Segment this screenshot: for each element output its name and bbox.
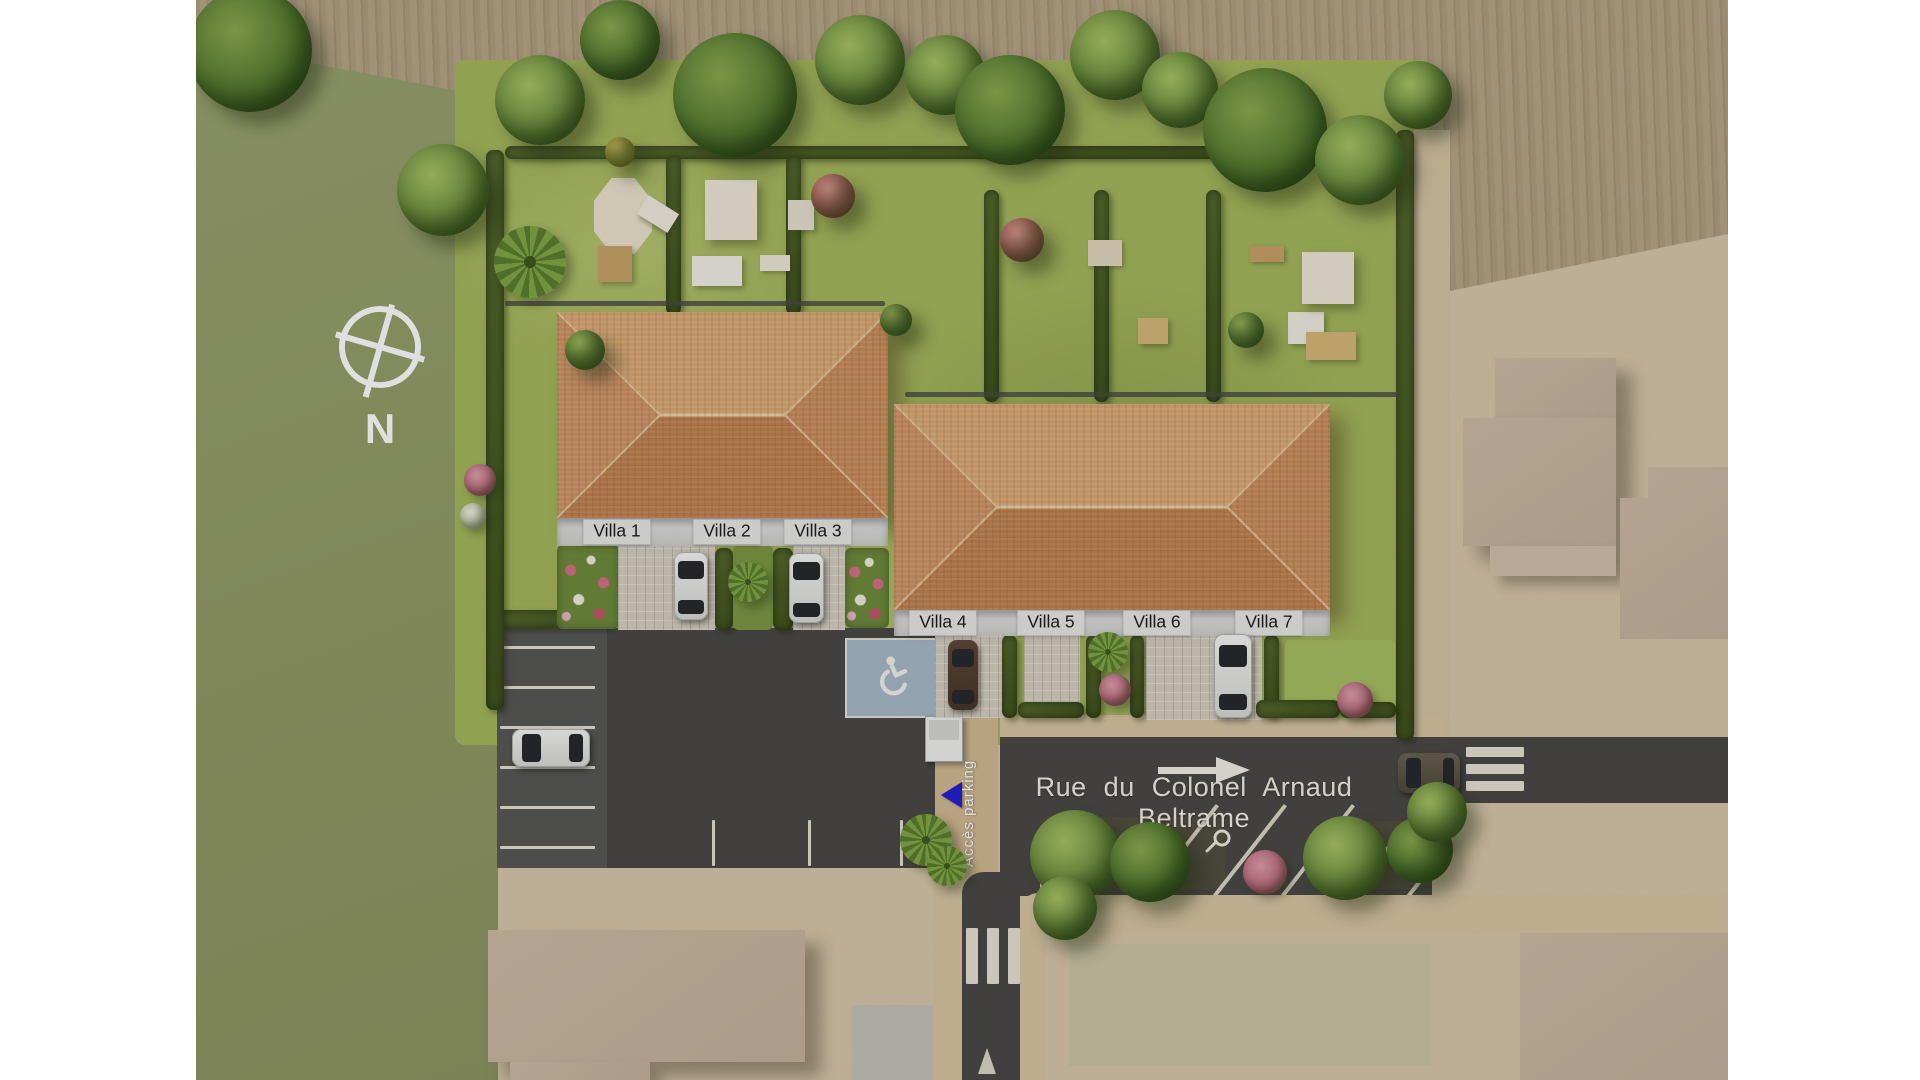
crosswalk-bar — [1008, 928, 1020, 984]
east-boundary-hedge — [1396, 130, 1414, 740]
driveway-hedge — [1130, 635, 1144, 718]
compass-icon: N — [330, 295, 430, 447]
parking-stall-line — [500, 646, 595, 649]
site-plan-image: Rue du Colonel Arnaud Beltrame Accès par… — [0, 0, 1920, 1080]
garden-table — [1138, 318, 1168, 344]
building-2 — [894, 404, 1330, 610]
garden-table — [692, 256, 742, 286]
flowering-shrub — [605, 137, 635, 167]
villa-3-label[interactable]: Villa 3 — [784, 520, 851, 545]
garden-table — [1306, 332, 1356, 360]
garden-table — [788, 200, 814, 230]
building-1-facade: Villa 1 Villa 2 Villa 3 — [557, 518, 888, 546]
car-villa-2 — [674, 552, 708, 620]
crosswalk-bar — [1466, 764, 1524, 774]
front-flowerbed — [557, 545, 619, 629]
villa-1-label[interactable]: Villa 1 — [583, 520, 650, 545]
driveway-hedge — [1002, 635, 1017, 718]
neighbor-building-ne-main — [1463, 418, 1616, 546]
yield-marking — [978, 1048, 996, 1074]
tree — [495, 55, 585, 145]
garden-divider-hedge — [984, 190, 999, 402]
flower-shrub — [1099, 674, 1131, 706]
garden-pergola — [1302, 252, 1354, 304]
neighbor-building-sw — [488, 930, 805, 1062]
parked-car — [512, 729, 590, 767]
left-margin — [0, 0, 196, 1080]
villa-7-label[interactable]: Villa 7 — [1235, 611, 1302, 636]
tree — [673, 33, 797, 157]
flower-shrub — [1337, 682, 1373, 718]
crosswalk-bar — [1466, 747, 1524, 757]
crosswalk-bar — [966, 928, 978, 984]
palm-tree — [494, 226, 566, 298]
flower-shrub — [460, 503, 486, 529]
crosswalk-bar — [987, 928, 999, 984]
garden-lounger — [760, 255, 790, 271]
garden-divider-hedge — [1094, 190, 1109, 402]
tree — [1384, 61, 1452, 129]
flowering-tree — [811, 174, 855, 218]
street-tree — [1033, 876, 1097, 940]
tree — [815, 15, 905, 105]
parking-stall-line — [500, 846, 595, 849]
compass-north-label: N — [365, 405, 395, 447]
building-1 — [557, 312, 888, 518]
villa-4-label[interactable]: Villa 4 — [909, 611, 976, 636]
car-villa-7 — [1214, 634, 1252, 718]
rear-garden-fence — [905, 392, 1400, 397]
neighbor-building-se — [1520, 915, 1728, 1080]
garden-divider-hedge — [1206, 190, 1221, 402]
front-hedge — [1018, 702, 1084, 718]
villa-2-label[interactable]: Villa 2 — [693, 520, 760, 545]
garden-lounger — [1088, 240, 1122, 266]
south-sidewalk — [1030, 895, 1728, 933]
villa-5-label[interactable]: Villa 5 — [1017, 611, 1084, 636]
street-tree — [1407, 782, 1467, 842]
plan-content: Rue du Colonel Arnaud Beltrame Accès par… — [196, 0, 1728, 1080]
palm-tree — [1088, 632, 1128, 672]
garden-shrub — [565, 330, 605, 370]
neighbor-building-east — [1620, 467, 1728, 639]
tree — [955, 55, 1065, 165]
palm-tree — [728, 562, 768, 602]
neighbor-building-sw-annex — [510, 1062, 650, 1080]
street-direction-arrow-icon — [1158, 757, 1250, 783]
garden-table — [1250, 246, 1284, 262]
car-villa-4 — [948, 640, 978, 710]
garden-shrub — [880, 304, 912, 336]
villa-6-label[interactable]: Villa 6 — [1123, 611, 1190, 636]
garden-table — [598, 246, 632, 282]
tree — [397, 144, 489, 236]
flowering-tree — [1000, 218, 1044, 262]
tree — [580, 0, 660, 80]
flower-shrub — [464, 464, 496, 496]
streetlamp-icon — [1204, 827, 1232, 855]
neighbor-driveway-pad — [852, 1005, 945, 1080]
neighbor-building-ne-upper — [1495, 358, 1616, 420]
parking-stall-line — [808, 820, 811, 866]
garden-divider-hedge — [666, 155, 681, 315]
east-boundary-path — [1414, 130, 1450, 742]
roof-tile-texture — [557, 312, 888, 518]
street-shrub — [1243, 850, 1287, 894]
roof-tile-texture — [894, 404, 1330, 610]
rear-garden-fence — [505, 301, 885, 306]
right-margin — [1728, 0, 1920, 1080]
handicap-parking-space — [845, 638, 937, 718]
parking-entrance-arrow-icon — [941, 782, 962, 808]
front-hedge — [1256, 700, 1340, 718]
street-palm — [927, 846, 967, 886]
car-villa-3 — [789, 553, 824, 623]
vacant-lot — [1055, 930, 1445, 1080]
garden-divider-hedge — [786, 155, 801, 315]
garden-shrub — [1228, 312, 1264, 348]
neighbor-building-ne-wing — [1490, 546, 1616, 576]
street-tree — [1303, 816, 1387, 900]
parking-stall-line — [500, 686, 595, 689]
parking-stall-line — [712, 820, 715, 866]
west-sidewalk — [933, 875, 962, 1080]
tree — [1203, 68, 1327, 192]
street-tree — [1110, 822, 1190, 902]
crosswalk-bar — [1466, 781, 1524, 791]
garden-pergola — [705, 180, 757, 240]
parking-stall-line — [500, 806, 595, 809]
west-boundary-hedge — [486, 150, 504, 710]
tree — [1315, 115, 1405, 205]
utility-shelter — [925, 716, 963, 762]
wheelchair-icon — [860, 647, 918, 705]
front-flowerbed — [845, 548, 889, 628]
